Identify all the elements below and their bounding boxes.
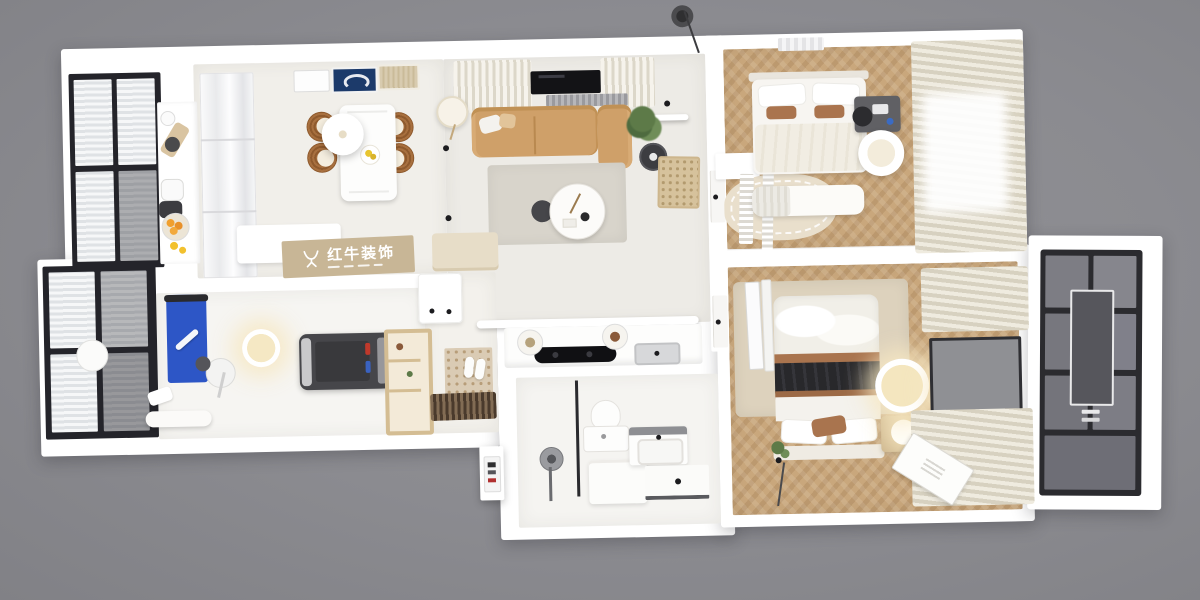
hob-burner [586,351,592,357]
dark-doormat [430,392,497,422]
table-runner [349,190,389,193]
window-pane [117,78,157,165]
center-fabric-panel [1070,290,1115,406]
decor-book [563,218,577,227]
vanity-washbasin [629,426,688,465]
bull-logo-icon [301,248,322,269]
laptop [872,104,888,114]
brown-lumbar-pillow [814,105,844,119]
decor-bowl [580,212,589,221]
window-pane [118,170,158,261]
white-slipper [464,356,475,378]
white-pillow [812,82,861,105]
hob-burner [552,352,558,358]
entry-patterned-tile [444,347,493,394]
cup [649,153,657,161]
window-pane [101,270,149,347]
lemon [179,247,186,254]
carved-screen-panel [657,156,700,209]
basin [637,438,684,465]
floor-plan: 红牛装饰 [22,0,1178,600]
wall-art-navy [331,67,378,94]
window-pane [49,272,97,349]
master-bed [773,294,882,466]
black-induction-hob [534,346,616,364]
lemon [370,154,376,160]
wood-open-shelf [384,329,434,436]
wall-art-cane [377,64,420,91]
counter-sink [634,342,680,365]
shelf-item [396,343,403,350]
watermark-subtext-dashes [328,263,396,268]
shelf-item [407,371,413,377]
blue-bottle [365,361,370,373]
flush-button [601,434,606,439]
door-handle [713,195,718,200]
gym-bench [145,410,211,427]
balcony-left-glazing [42,264,159,439]
hall-cabinet [418,273,463,324]
living-window [530,70,600,94]
watermark-text: 红牛装饰 [327,245,396,263]
cabinet-handle [446,309,451,314]
bench-blanket [752,186,791,217]
master-wall-tv [929,336,1023,414]
cabinet-seam [202,210,256,213]
white-foam-roller [174,328,199,351]
duvet-crumpled [773,294,879,360]
decor-branch [569,193,581,214]
sign-mark [488,462,496,467]
kettle [161,179,184,201]
wall-art-white [293,70,329,93]
canvas-sketch [920,456,946,479]
orange [170,227,178,235]
guest-window-glow [922,91,1008,213]
basin-faucet [656,435,661,440]
jar-lid [610,332,620,342]
bath-storage-block [589,459,648,504]
cable-plug [776,457,782,463]
tray-drain [675,478,681,484]
cabinet-seam [201,138,255,141]
tv-console [432,232,499,271]
guest-top-vent [778,37,824,51]
handle-mark [1082,410,1100,414]
sofa-chaise [597,104,632,169]
blue-mug [887,118,894,125]
shelf-board [388,359,420,363]
table-runner [347,110,387,113]
tan-pillow [499,113,517,129]
white-slipper [474,358,486,380]
treadmill [299,332,392,390]
duvet [755,122,866,172]
handle-mark [1082,418,1100,422]
lemon-plate [360,145,380,165]
pendant-center [339,130,347,138]
tan-sofa [471,104,632,171]
glass-panel [1044,435,1135,489]
faucet [654,351,659,356]
window-reflection [539,75,565,79]
door-handle [716,319,721,324]
wardrobe-glass-unit [1039,249,1142,496]
guest-bed [752,70,868,174]
window-pane [102,352,150,431]
sign-mark [488,470,496,474]
shower-tray [645,465,710,500]
red-bottle [365,343,370,355]
treadmill-endcap [301,338,312,386]
sign-mark-red [488,478,496,482]
ceiling-spot [443,145,449,151]
master-curtain-top [921,266,1029,332]
ceiling-spot [664,100,670,106]
window-pane [74,79,114,166]
jar-lid [525,337,535,347]
apartment-render: 红牛装饰 [0,0,1200,600]
toilet [580,399,629,452]
headboard [773,444,884,460]
window-pane [75,171,115,262]
brown-lumbar-pillow [766,106,796,120]
white-pillow [757,82,806,107]
shelf-board [389,389,421,393]
bedroom-master-door [712,295,728,347]
treadmill-belt [315,341,370,382]
mat-bar [164,294,208,302]
foot-bench [752,184,865,216]
watermark-band: 红牛装饰 [281,235,415,278]
cabinet-handle [429,308,434,313]
door-sign-panel [484,456,502,492]
art-swirl [343,74,369,91]
ceiling-spot [445,215,451,221]
toilet-tank [583,425,630,452]
orange [166,219,174,227]
balcony-top-left-glazing [68,72,164,269]
